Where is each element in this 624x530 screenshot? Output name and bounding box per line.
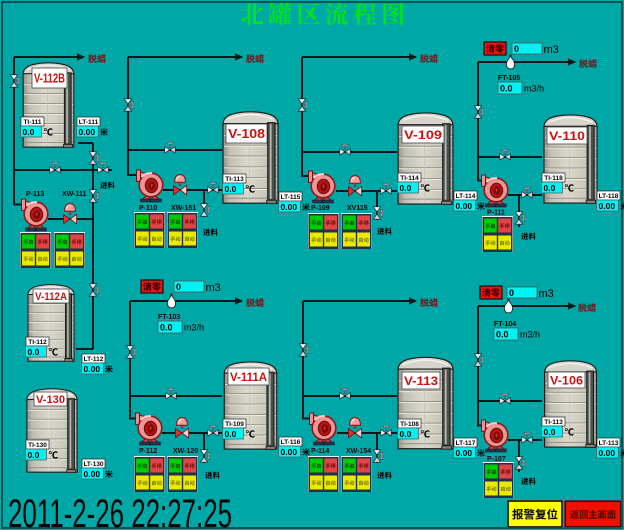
svg-text:V-112A: V-112A: [35, 291, 67, 303]
svg-text:0.00: 0.00: [281, 202, 298, 212]
svg-text:0.00: 0.00: [599, 201, 616, 211]
svg-text:0.0: 0.0: [500, 84, 513, 94]
svg-text:m3: m3: [206, 282, 221, 294]
svg-text:P-112: P-112: [139, 448, 157, 455]
svg-text:0.0: 0.0: [160, 323, 173, 333]
svg-text:0.00: 0.00: [84, 364, 101, 374]
svg-text:m3/h: m3/h: [524, 84, 544, 94]
svg-text:XW-151: XW-151: [171, 205, 196, 212]
svg-text:0.0: 0.0: [28, 347, 40, 357]
svg-text:FT-103: FT-103: [158, 314, 180, 321]
svg-text:0.00: 0.00: [456, 448, 473, 458]
svg-text:0.0: 0.0: [544, 183, 556, 193]
svg-text:V-113: V-113: [404, 374, 438, 388]
svg-text:m3: m3: [539, 288, 554, 300]
svg-text:0: 0: [509, 288, 514, 298]
svg-text:XW-120: XW-120: [173, 448, 198, 455]
svg-text:XV115: XV115: [347, 205, 368, 212]
svg-text:LT-130: LT-130: [83, 461, 103, 468]
svg-text:P-107: P-107: [487, 456, 506, 463]
svg-text:LT-118: LT-118: [599, 193, 619, 200]
svg-text:TI-111: TI-111: [23, 119, 41, 126]
svg-text:0.0: 0.0: [28, 450, 40, 460]
svg-text:0.00: 0.00: [79, 127, 96, 137]
svg-text:V-108: V-108: [228, 126, 265, 141]
svg-text:0.00: 0.00: [281, 447, 298, 457]
svg-text:LT-113: LT-113: [599, 440, 619, 447]
svg-text:TI-112: TI-112: [28, 339, 47, 346]
svg-text:TI-114: TI-114: [400, 175, 419, 182]
svg-text:TI-113: TI-113: [544, 419, 563, 426]
svg-text:0.0: 0.0: [544, 427, 556, 437]
svg-text:TI-109: TI-109: [225, 421, 244, 428]
svg-text:FT-105: FT-105: [498, 75, 520, 82]
svg-text:LT-116: LT-116: [281, 439, 301, 446]
svg-text:LT-117: LT-117: [456, 440, 476, 447]
svg-text:0.0: 0.0: [23, 127, 35, 137]
svg-text:0.0: 0.0: [400, 183, 412, 193]
svg-text:TI-118: TI-118: [544, 175, 563, 182]
svg-text:P-114: P-114: [311, 448, 329, 455]
svg-text:0.00: 0.00: [599, 448, 616, 458]
svg-text:P-113: P-113: [26, 191, 44, 198]
svg-text:TI-108: TI-108: [400, 421, 419, 428]
svg-text:0.00: 0.00: [456, 201, 473, 211]
svg-text:LT-112: LT-112: [84, 356, 104, 363]
svg-text:V-110: V-110: [549, 129, 585, 143]
svg-text:XW-111: XW-111: [62, 191, 86, 198]
svg-text:0.0: 0.0: [400, 429, 412, 439]
svg-text:P-111: P-111: [487, 210, 505, 217]
svg-text:FT-104: FT-104: [494, 321, 516, 328]
svg-text:TI-130: TI-130: [28, 442, 47, 449]
svg-text:m3: m3: [544, 44, 559, 56]
svg-text:0: 0: [514, 44, 519, 54]
svg-text:2011-2-26 22:27:25: 2011-2-26 22:27:25: [8, 492, 232, 530]
svg-text:P-110: P-110: [139, 205, 157, 212]
svg-text:XW-154: XW-154: [346, 448, 371, 455]
svg-text:V-111A: V-111A: [230, 370, 267, 384]
svg-text:0.0: 0.0: [496, 330, 509, 340]
svg-text:P-109: P-109: [311, 205, 330, 212]
svg-text:m3/h: m3/h: [184, 323, 204, 333]
svg-text:TI-113: TI-113: [225, 176, 244, 183]
svg-text:V-130: V-130: [36, 394, 65, 406]
svg-text:0: 0: [176, 282, 181, 292]
svg-text:V-109: V-109: [404, 128, 442, 142]
svg-text:V-112B: V-112B: [34, 71, 65, 86]
svg-text:0.0: 0.0: [225, 184, 237, 194]
svg-text:LT-115: LT-115: [281, 194, 301, 201]
svg-text:0.00: 0.00: [84, 469, 101, 479]
svg-text:LT-111: LT-111: [79, 119, 99, 126]
svg-text:LT-114: LT-114: [456, 193, 476, 200]
svg-text:V-106: V-106: [550, 373, 583, 387]
svg-text:0.0: 0.0: [225, 429, 237, 439]
svg-text:m3/h: m3/h: [520, 330, 540, 340]
